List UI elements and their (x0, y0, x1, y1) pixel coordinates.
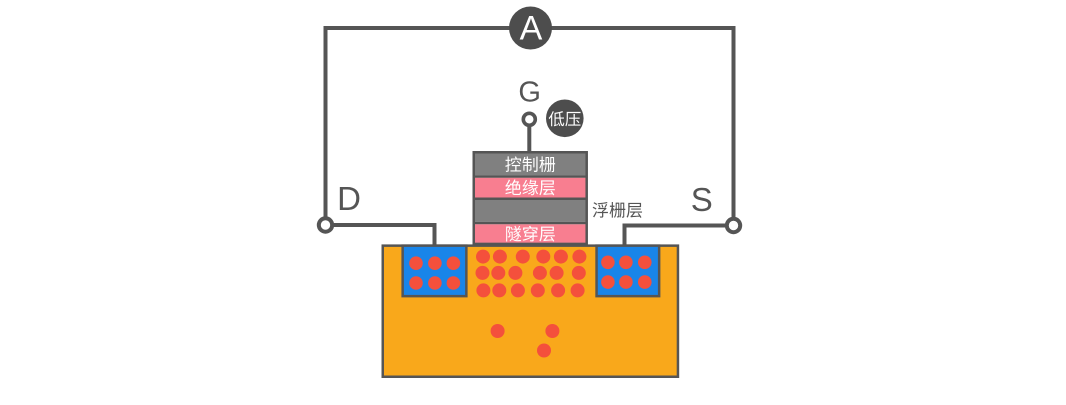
svg-text:A: A (520, 10, 543, 48)
svg-text:G: G (518, 76, 541, 108)
svg-text:D: D (337, 180, 361, 217)
svg-text:S: S (691, 181, 713, 218)
